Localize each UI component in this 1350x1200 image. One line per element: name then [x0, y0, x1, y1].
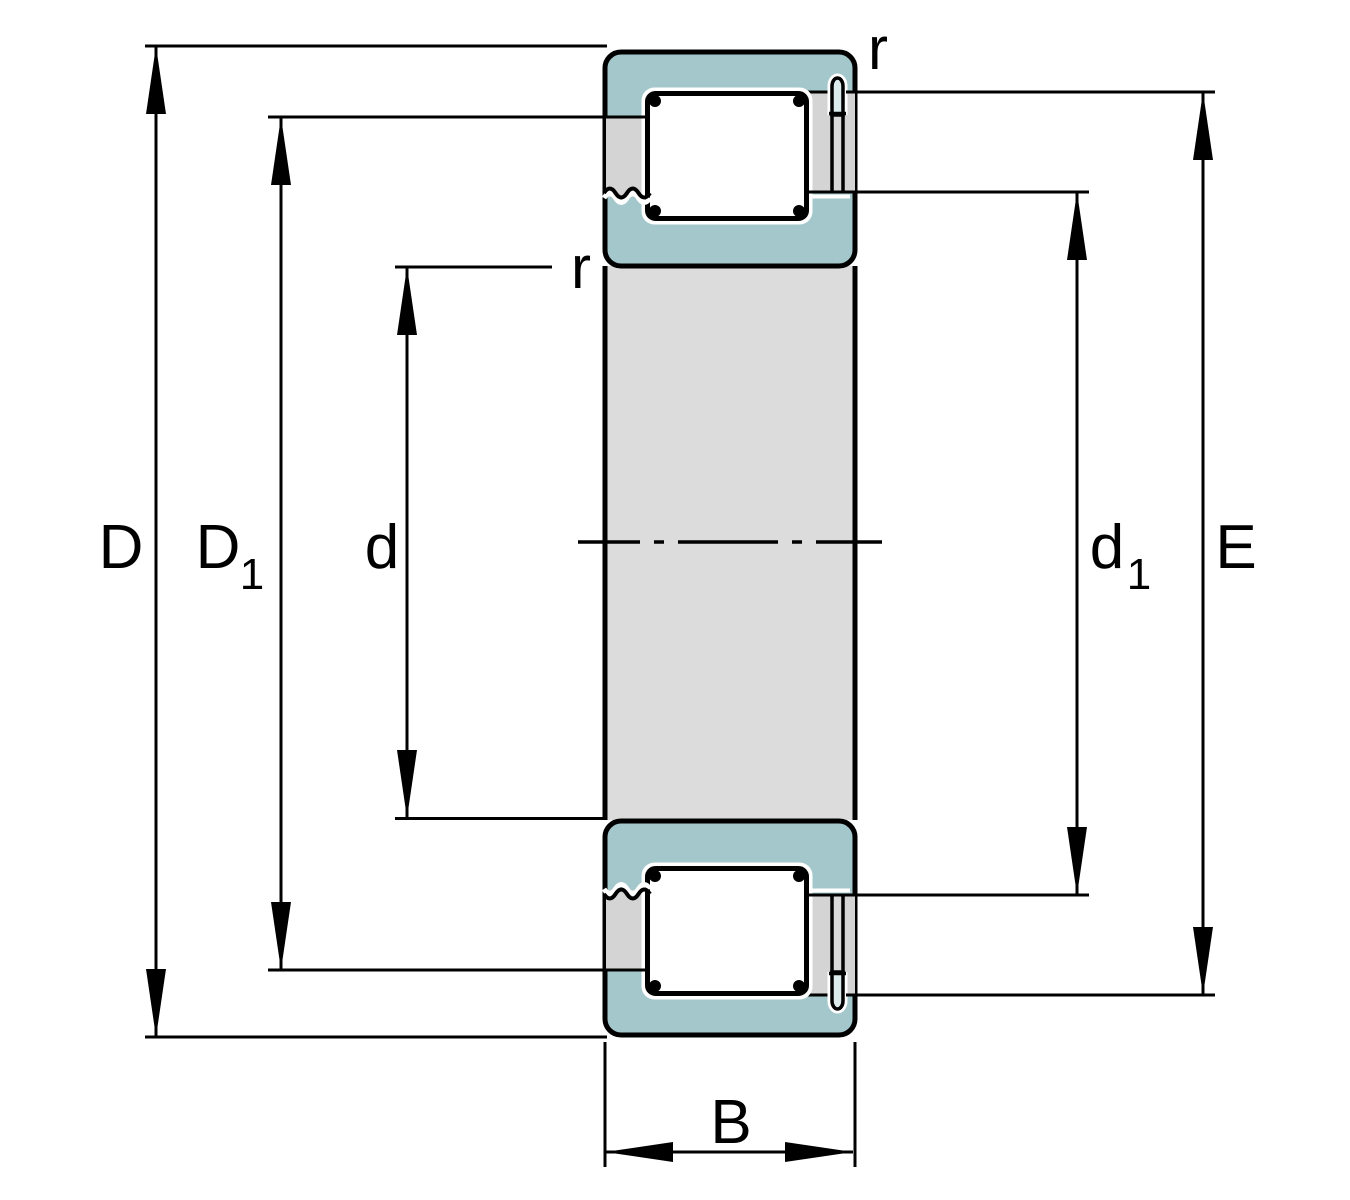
- inner-ring-bore: [578, 266, 882, 820]
- label-dim-D: D: [99, 513, 144, 582]
- roller-halo-lower: [642, 863, 813, 1000]
- roller-corner-dot: [649, 870, 661, 882]
- arrowhead-d-top: [397, 267, 417, 335]
- arrowhead-d-bottom: [397, 750, 417, 818]
- bearing-upper-section: [604, 52, 855, 266]
- roller-corner-dot: [649, 95, 661, 107]
- arrowhead-D-top: [146, 46, 166, 114]
- bearing-drawing-page: D D 1 d d 1 E B r r: [0, 0, 1350, 1200]
- roller-corner-dot: [793, 980, 805, 992]
- roller-halo-upper: [642, 88, 813, 225]
- label-dim-B: B: [710, 1088, 751, 1157]
- label-dim-d1: d: [1090, 513, 1124, 582]
- label-dim-D1: D: [196, 513, 241, 582]
- label-dim-E: E: [1215, 513, 1256, 582]
- bearing-cross-section-drawing: D D 1 d d 1 E B r r: [0, 0, 1350, 1200]
- roller-corner-dot: [649, 205, 661, 217]
- arrowhead-B-left: [605, 1142, 673, 1162]
- label-fillet-r-top: r: [868, 15, 888, 82]
- arrowhead-D-bottom: [146, 969, 166, 1037]
- cage-pin-lower: [832, 972, 843, 1009]
- label-dim-d1-subscript: 1: [1127, 550, 1151, 599]
- arrowhead-D1-top: [271, 117, 291, 185]
- cage-pin-upper: [832, 78, 843, 115]
- arrowhead-E-top: [1193, 92, 1213, 160]
- roller-corner-dot: [649, 980, 661, 992]
- bearing-lower-section: [604, 821, 855, 1035]
- roller-corner-dot: [793, 205, 805, 217]
- roller-corner-dot: [793, 870, 805, 882]
- arrowhead-d1-bottom: [1067, 827, 1087, 895]
- arrowhead-E-bottom: [1193, 927, 1213, 995]
- roller-corner-dot: [793, 95, 805, 107]
- label-dim-d: d: [365, 513, 399, 582]
- arrowhead-B-right: [785, 1142, 853, 1162]
- arrowhead-d1-top: [1067, 192, 1087, 260]
- label-fillet-r-inner: r: [571, 234, 591, 301]
- label-dim-D1-subscript: 1: [240, 550, 264, 599]
- arrowhead-D1-bottom: [271, 902, 291, 970]
